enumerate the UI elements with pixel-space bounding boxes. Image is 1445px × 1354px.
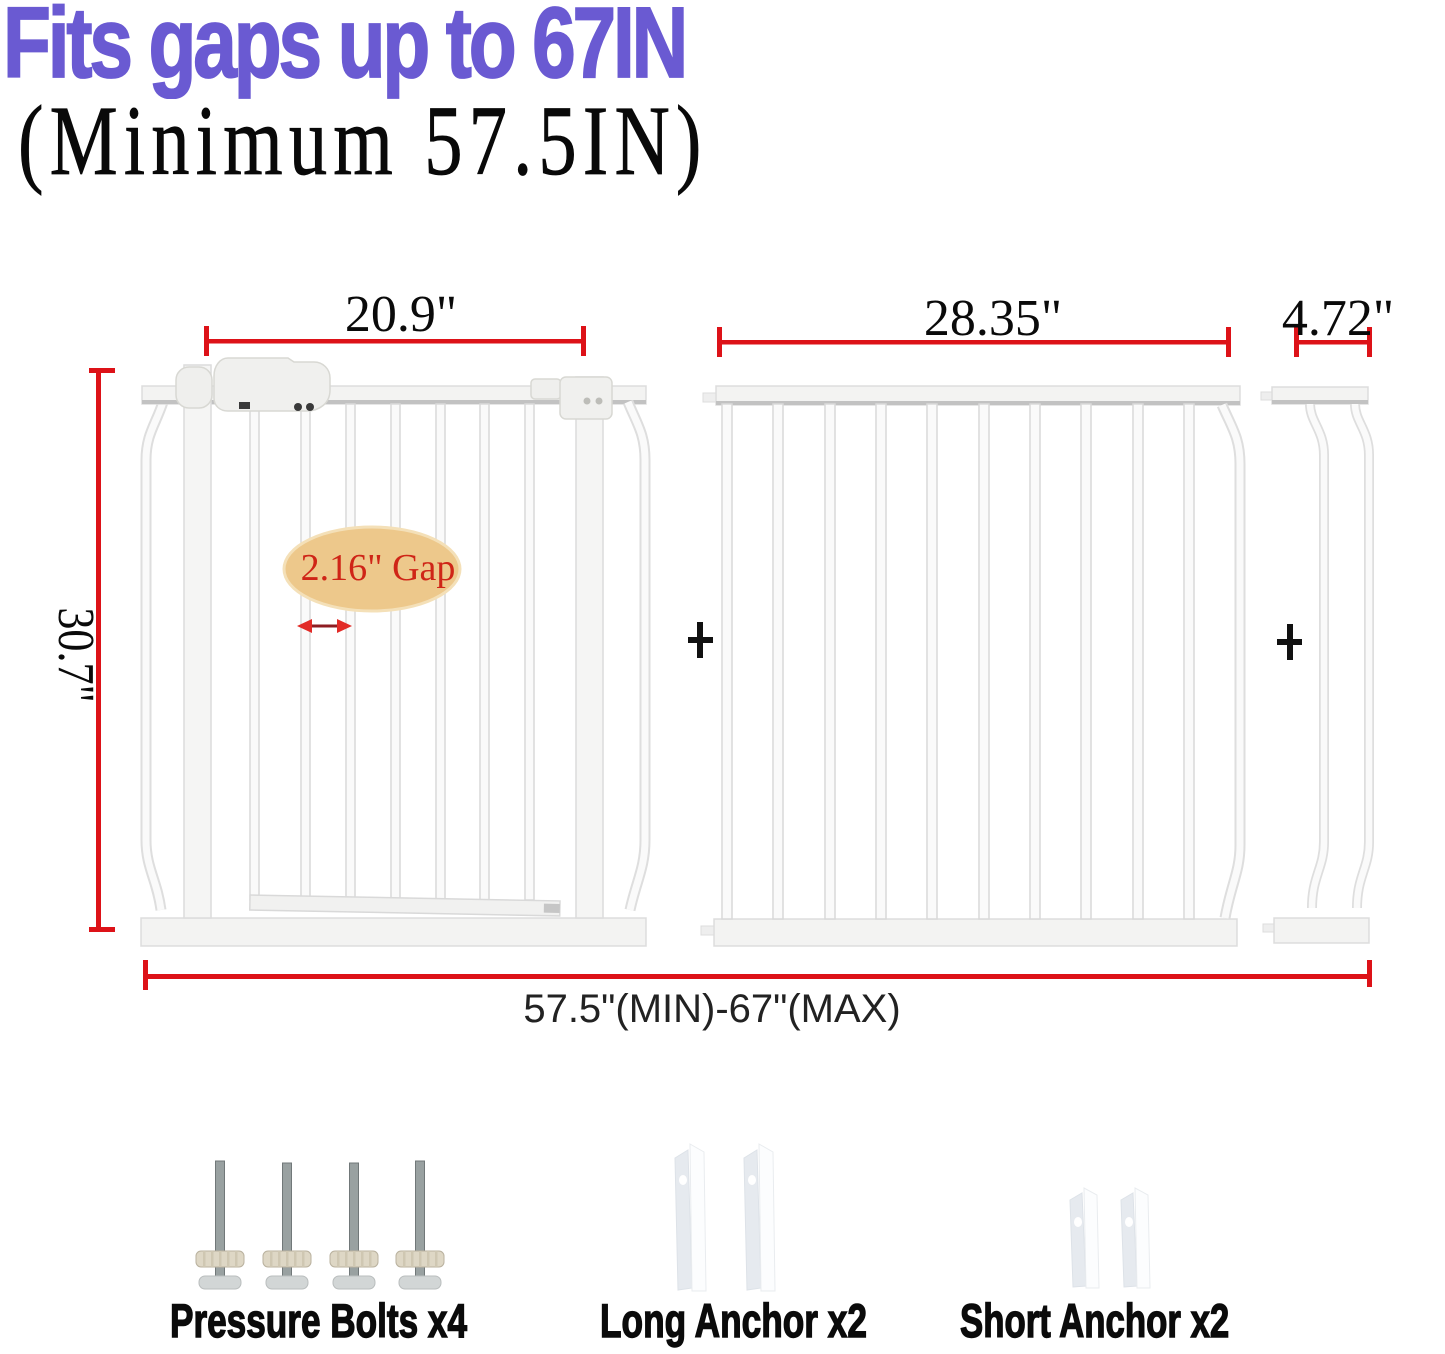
svg-text:2.16" Gap: 2.16" Gap [301, 547, 456, 589]
svg-text:57.5"(MIN)-67"(MAX): 57.5"(MIN)-67"(MAX) [523, 987, 900, 1031]
svg-text:20.9": 20.9" [345, 286, 457, 343]
svg-text:30.7": 30.7" [47, 607, 104, 702]
svg-text:4.72": 4.72" [1282, 290, 1394, 347]
svg-text:28.35": 28.35" [924, 290, 1062, 347]
